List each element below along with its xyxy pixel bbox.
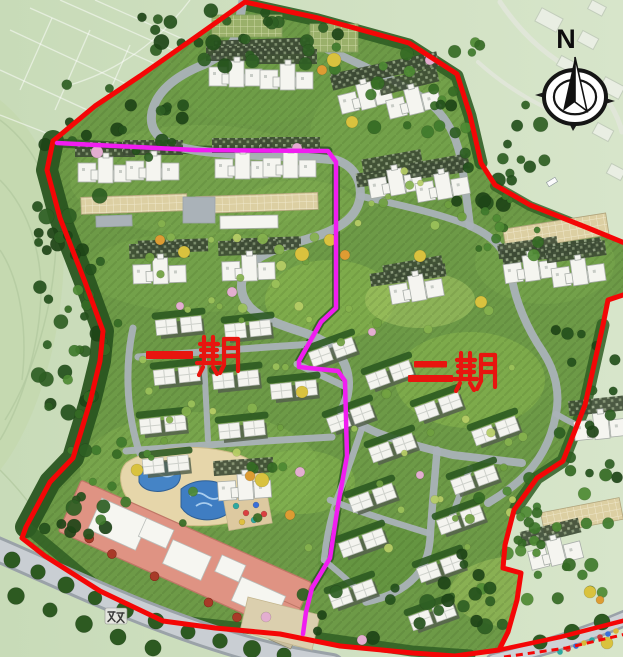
parking-strip [96,215,132,227]
villa-pair [266,371,323,403]
parking-strip [183,197,215,223]
site-plan-map: N [0,0,623,657]
site-plan-frame: N [0,0,623,657]
slab-building [220,215,278,229]
north-label: N [556,24,576,54]
map-render-layers [0,0,623,657]
road-name-label [105,608,127,624]
villa-pair [151,307,208,339]
villa-pair [214,411,271,443]
